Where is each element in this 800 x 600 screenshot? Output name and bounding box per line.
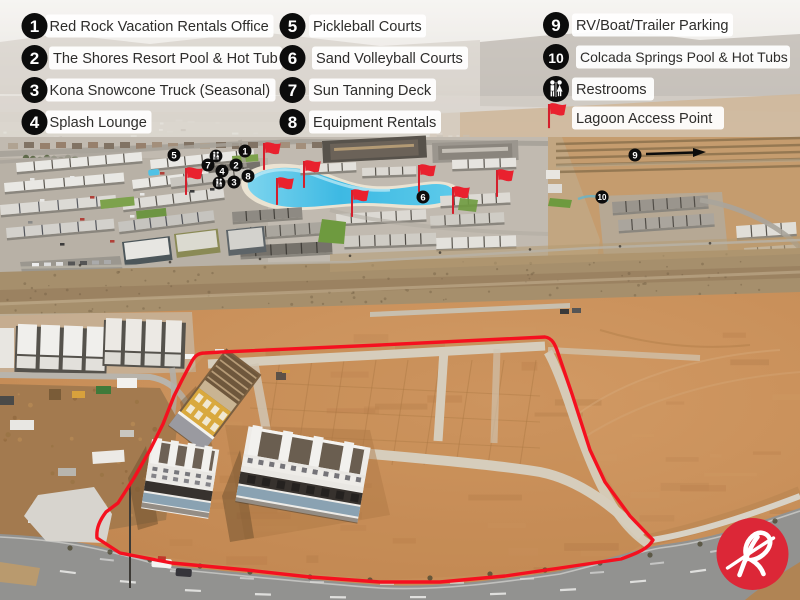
svg-text:8: 8 [288,113,297,132]
svg-text:8: 8 [245,171,250,182]
svg-text:1: 1 [30,17,39,36]
svg-text:2: 2 [30,49,39,68]
svg-text:3: 3 [30,81,39,100]
svg-text:4: 4 [30,113,40,132]
svg-text:RV/Boat/Trailer Parking: RV/Boat/Trailer Parking [576,18,729,34]
svg-text:Red Rock Vacation Rentals Offi: Red Rock Vacation Rentals Office [50,19,269,35]
svg-text:2: 2 [233,160,238,171]
svg-text:Kona Snowcone Truck (Seasonal): Kona Snowcone Truck (Seasonal) [50,83,271,99]
svg-text:9: 9 [551,16,560,35]
svg-text:7: 7 [288,81,297,100]
svg-text:Sand Volleyball Courts: Sand Volleyball Courts [316,51,463,67]
svg-text:Lagoon Access Point: Lagoon Access Point [576,111,712,127]
svg-text:Colcada Springs Pool & Hot Tub: Colcada Springs Pool & Hot Tubs [580,49,788,65]
svg-text:Restrooms: Restrooms [576,82,647,98]
svg-text:1: 1 [242,146,248,157]
svg-text:6: 6 [420,192,425,203]
svg-text:Equipment Rentals: Equipment Rentals [313,115,436,131]
svg-text:Pickleball Courts: Pickleball Courts [313,19,422,35]
svg-text:7: 7 [205,160,210,171]
svg-text:Sun Tanning Deck: Sun Tanning Deck [313,83,432,99]
svg-text:4: 4 [219,166,225,177]
svg-text:10: 10 [598,193,607,202]
svg-text:5: 5 [288,17,297,36]
svg-text:3: 3 [231,177,236,188]
svg-text:The Shores Resort Pool & Hot T: The Shores Resort Pool & Hot Tub [53,51,278,67]
svg-text:10: 10 [548,50,564,66]
svg-text:6: 6 [288,49,297,68]
svg-text:Splash Lounge: Splash Lounge [50,115,147,131]
svg-text:9: 9 [632,150,637,161]
svg-text:5: 5 [171,150,177,161]
